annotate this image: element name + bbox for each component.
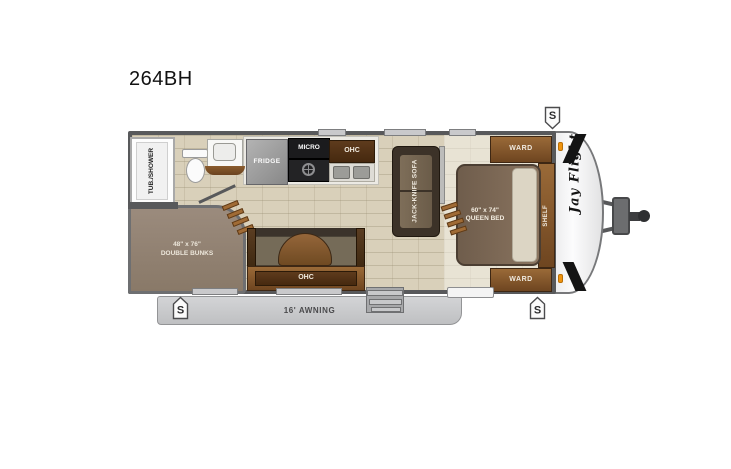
entry-step-tread	[367, 290, 403, 296]
window	[276, 288, 342, 295]
queen-bed-label-wrap: 60" x 74" QUEEN BED	[457, 164, 513, 266]
window	[449, 129, 476, 136]
sofa-label-wrap: JACK-KNIFE SOFA	[392, 146, 440, 237]
window	[318, 129, 346, 136]
speaker-badge-bottom-left: S	[172, 296, 189, 320]
speaker-badge-bottom-right: S	[529, 296, 546, 320]
wardrobe-bottom: WARD	[490, 268, 552, 292]
hitch-ball-icon	[638, 210, 650, 222]
floorplan-canvas: 264BH Jay Flight TUB./SHOWER FRIDGE MICR…	[0, 0, 731, 469]
stove-burner-cross	[302, 169, 315, 170]
bathroom-sink-icon	[213, 143, 236, 161]
dinette-ohc-panel: OHC	[255, 271, 357, 286]
speaker-badge-top: S	[544, 106, 561, 130]
bathroom-wall	[128, 202, 178, 209]
svg-text:S: S	[549, 110, 556, 122]
kitchen-overhead-cabinet: OHC	[329, 140, 375, 163]
bathroom-counter-edge	[205, 166, 245, 175]
entry-step-tread	[371, 307, 401, 312]
bed-pillow	[512, 168, 537, 262]
clearance-light-icon	[558, 274, 563, 283]
sink-basin-icon	[353, 166, 370, 179]
toilet-tank	[182, 149, 208, 158]
tub-shower-label: TUB./SHOWER	[148, 148, 156, 194]
svg-text:S: S	[177, 305, 184, 317]
tub-shower-label-wrap: TUB./SHOWER	[130, 137, 175, 205]
entry-door	[447, 287, 494, 298]
hitch-coupler	[612, 197, 630, 235]
dinette-arm	[247, 228, 256, 267]
model-title: 264BH	[129, 68, 193, 91]
shelf-label: SHELF	[543, 205, 551, 227]
sink-basin-icon	[333, 166, 350, 179]
fridge: FRIDGE	[246, 139, 288, 185]
clearance-light-icon	[558, 142, 563, 151]
double-bunks-label: 48" x 76" DOUBLE BUNKS	[161, 241, 213, 257]
sofa-label: JACK-KNIFE SOFA	[412, 160, 420, 223]
wardrobe-top: WARD	[490, 136, 552, 163]
awning: 16' AWNING	[157, 296, 462, 325]
toilet-icon	[186, 158, 205, 183]
window	[192, 288, 238, 295]
entry-step-tread	[369, 299, 402, 305]
queen-bed-label: 60" x 74" QUEEN BED	[466, 207, 505, 223]
microwave: MICRO	[288, 138, 330, 159]
dinette-arm	[356, 228, 365, 267]
window	[384, 129, 426, 136]
svg-text:S: S	[534, 305, 541, 317]
